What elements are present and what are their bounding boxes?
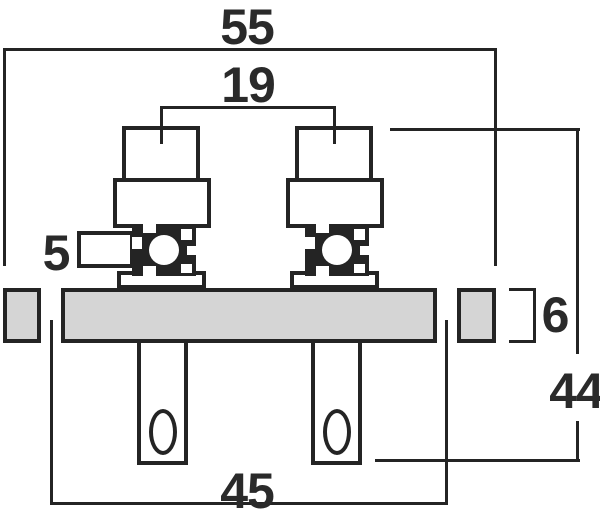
dim-label-hole-spacing: 45 bbox=[197, 466, 297, 509]
dim-label-overall-width: 55 bbox=[197, 2, 297, 52]
dimension-line-overall-height-lower bbox=[576, 421, 579, 462]
post-body-left bbox=[113, 178, 211, 228]
lug-hole-right bbox=[323, 409, 351, 455]
post-body-right bbox=[286, 178, 384, 228]
dim-label-panel-thickness: 6 bbox=[527, 290, 583, 340]
dim-label-side-lug: 5 bbox=[26, 228, 86, 278]
dim-label-overall-height: 44 bbox=[534, 366, 600, 416]
center-line-slot-left bbox=[50, 320, 53, 505]
extension-line-overall-width-right bbox=[494, 48, 497, 266]
lug-hole-left bbox=[149, 409, 177, 455]
cable-hole-left bbox=[149, 235, 179, 265]
knurled-nut-right bbox=[305, 224, 369, 276]
mounting-panel bbox=[3, 288, 496, 343]
technical-drawing: 55 19 5 6 44 45 bbox=[0, 0, 600, 509]
bracket-panel-thickness-bottom bbox=[509, 340, 536, 343]
cable-hole-right bbox=[322, 235, 352, 265]
extension-line-post-spacing-left bbox=[160, 106, 163, 144]
center-line-slot-right bbox=[445, 320, 448, 505]
extension-line-overall-width-left bbox=[3, 48, 6, 266]
knurled-nut-left bbox=[132, 224, 196, 276]
leader-line-overall-height-bottom bbox=[375, 459, 580, 462]
extension-line-post-spacing-right bbox=[333, 106, 336, 144]
leader-line-overall-height-top bbox=[390, 128, 580, 131]
dim-label-post-spacing: 19 bbox=[198, 60, 298, 110]
